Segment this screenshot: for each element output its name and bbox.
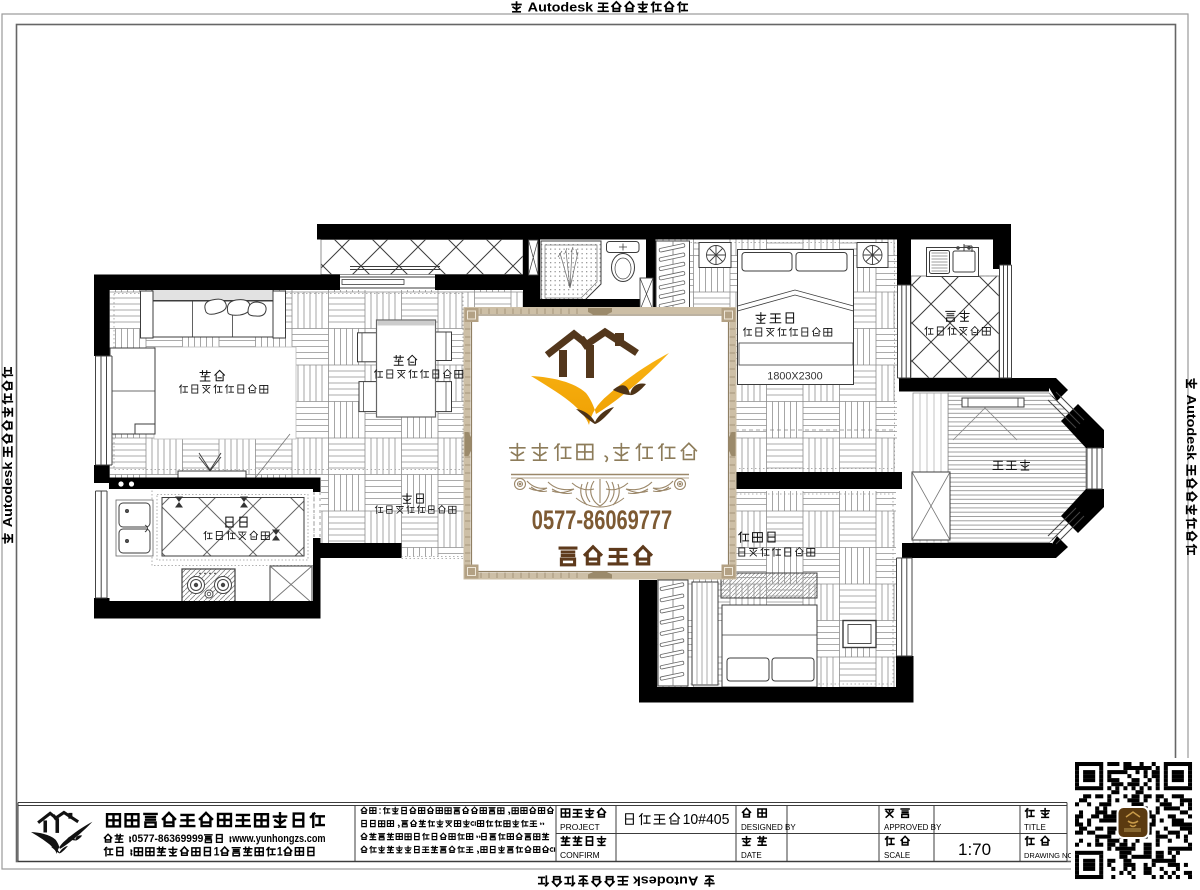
svg-text:0577-86369999: 0577-86369999 bbox=[132, 833, 204, 845]
svg-text:0577-86069777: 0577-86069777 bbox=[532, 505, 672, 535]
svg-text:1: 1 bbox=[277, 846, 283, 858]
svg-text:APPROVED BY: APPROVED BY bbox=[884, 823, 942, 832]
svg-text:PROJECT: PROJECT bbox=[560, 822, 600, 832]
svg-text:TITLE: TITLE bbox=[1024, 823, 1046, 832]
svg-text:DATE: DATE bbox=[741, 851, 762, 860]
svg-text:DESIGNED BY: DESIGNED BY bbox=[741, 823, 796, 832]
svg-text:1800X2300: 1800X2300 bbox=[767, 371, 822, 383]
svg-text:1:70: 1:70 bbox=[958, 840, 991, 859]
svg-text:www.yunhongzs.com: www.yunhongzs.com bbox=[231, 833, 326, 845]
svg-text:CONFIRM: CONFIRM bbox=[560, 850, 600, 860]
svg-text:1: 1 bbox=[214, 846, 220, 858]
svg-text:Autodesk: Autodesk bbox=[1184, 395, 1199, 461]
svg-text:Autodesk: Autodesk bbox=[528, 0, 594, 15]
svg-text:DRAWING NO: DRAWING NO bbox=[1024, 851, 1073, 860]
svg-text:SCALE: SCALE bbox=[884, 851, 910, 860]
svg-text:Autodesk: Autodesk bbox=[632, 874, 698, 889]
svg-text:10#405: 10#405 bbox=[683, 811, 730, 828]
svg-text:Autodesk: Autodesk bbox=[0, 461, 15, 527]
svg-text::: : bbox=[378, 806, 383, 816]
